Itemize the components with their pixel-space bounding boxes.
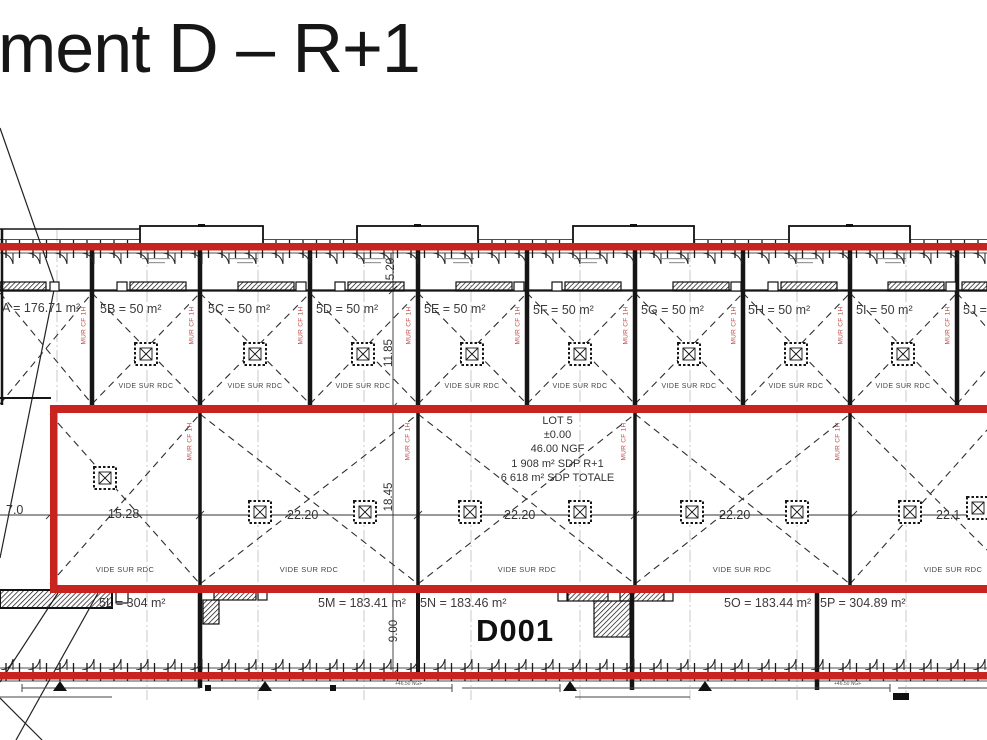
room-label-5m: 5M = 183.41 m² (318, 596, 406, 610)
dimension-label: 9.00 (388, 614, 400, 648)
mur-cf-label: MUR CF 1H (835, 410, 842, 474)
vide-sur-rdc-label: VIDE SUR RDC (761, 383, 831, 390)
mur-cf-label: MUR CF 1H (405, 410, 412, 474)
floor-plan-page: ment D – R+1 A = 176.71 m² 5B = 50 m² 5C… (0, 0, 987, 740)
vide-sur-rdc-label: VIDE SUR RDC (328, 383, 398, 390)
room-label-5e: 5E = 50 m² (424, 302, 486, 316)
dimension-label: 11.85 (383, 332, 395, 374)
room-label-5n: 5N = 183.46 m² (420, 596, 507, 610)
dimension-label: 22.1 (936, 508, 960, 522)
vide-sur-rdc-label: VIDE SUR RDC (654, 383, 724, 390)
vide-sur-rdc-label: VIDE SUR RDC (868, 383, 938, 390)
room-label-5c: 5C = 50 m² (208, 302, 270, 316)
dimension-label: 5.20 (385, 252, 397, 286)
mur-cf-label: MUR CF 1H (81, 294, 88, 358)
mur-cf-label: MUR CF 1H (623, 294, 630, 358)
mur-cf-label: MUR CF 1H (515, 294, 522, 358)
dimension-label: 22.20 (287, 508, 318, 522)
page-title: ment D – R+1 (0, 8, 420, 88)
vide-sur-rdc-label: VIDE SUR RDC (707, 565, 777, 574)
mur-cf-label: MUR CF 1H (621, 410, 628, 474)
vide-sur-rdc-label: VIDE SUR RDC (274, 565, 344, 574)
ngf-level-note: +46.50 NGF (395, 681, 422, 687)
room-label-5i: 5I = 50 m² (856, 303, 913, 317)
mur-cf-label: MUR CF 1H (838, 294, 845, 358)
room-label-5f: 5F = 50 m² (533, 303, 594, 317)
room-label-5b: 5B = 50 m² (100, 302, 162, 316)
room-label-5g: 5G = 50 m² (641, 303, 704, 317)
room-label-5a: A = 176.71 m² (2, 301, 80, 315)
ramp-lines (0, 128, 98, 740)
ngf-level-note: +46.50 NGF (834, 681, 861, 687)
room-label-5j: 5J = (963, 303, 987, 317)
mur-cf-label: MUR CF 1H (298, 294, 305, 358)
room-label-5d: 5D = 50 m² (316, 302, 378, 316)
lot5-sdp-total: 6 618 m² SDP TOTALE (495, 471, 620, 485)
mur-cf-label: MUR CF 1H (187, 410, 194, 474)
mur-cf-label: MUR CF 1H (731, 294, 738, 358)
lot5-sdp-r1: 1 908 m² SDP R+1 (495, 457, 620, 471)
room-label-5o: 5O = 183.44 m² (724, 596, 811, 610)
vide-sur-rdc-label: VIDE SUR RDC (437, 383, 507, 390)
room-label-5l: 5L = 304 m² (99, 596, 166, 610)
lot5-level: ±0.00 (495, 428, 620, 442)
vide-sur-rdc-label: VIDE SUR RDC (220, 383, 290, 390)
vide-sur-rdc-label: VIDE SUR RDC (90, 565, 160, 574)
dimension-label: 22.20 (719, 508, 750, 522)
vide-sur-rdc-label: VIDE SUR RDC (111, 383, 181, 390)
survey-triangles (53, 681, 909, 700)
room-label-5p: 5P = 304.89 m² (820, 596, 906, 610)
vide-sur-rdc-label: VIDE SUR RDC (545, 383, 615, 390)
lot5-ngf: 46.00 NGF (495, 442, 620, 456)
room-label-5h: 5H = 50 m² (748, 303, 810, 317)
vide-sur-rdc-label: VIDE SUR RDC (918, 565, 987, 574)
dimension-label: 18.45 (383, 476, 395, 518)
lot5-title: LOT 5 (495, 414, 620, 428)
lot5-info-block: LOT 5 ±0.00 46.00 NGF 1 908 m² SDP R+1 6… (495, 414, 620, 485)
door-code-label: D001 (476, 613, 554, 649)
vide-sur-rdc-label: VIDE SUR RDC (492, 565, 562, 574)
dimension-label: 22.20 (504, 508, 535, 522)
mur-cf-label: MUR CF 1H (406, 294, 413, 358)
mur-cf-label: MUR CF 1H (945, 294, 952, 358)
dimension-label: 7.0 (6, 503, 23, 517)
mur-cf-label: MUR CF 1H (189, 294, 196, 358)
dimension-label: 15.28 (108, 507, 139, 521)
